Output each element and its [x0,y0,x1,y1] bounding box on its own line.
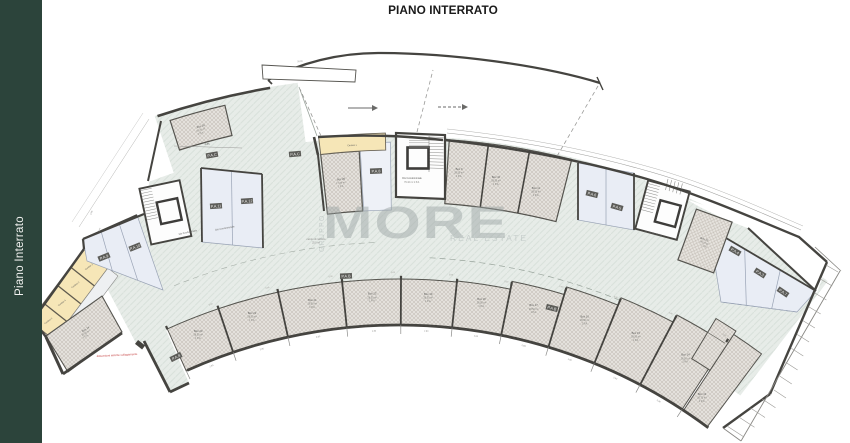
svg-text:1 P.A.: 1 P.A. [338,185,345,189]
svg-text:Dis Condominiale: Dis Condominiale [402,177,422,180]
svg-text:1 P.A.: 1 P.A. [456,175,463,178]
svg-text:1 P.A.: 1 P.A. [633,339,640,342]
svg-text:1 P.A.: 1 P.A. [425,300,432,303]
svg-text:4.85: 4.85 [204,142,210,146]
svg-text:Box 17: Box 17 [529,303,538,307]
svg-text:1 P.A.: 1 P.A. [582,323,589,326]
svg-text:Box 20: Box 20 [194,329,203,333]
svg-text:1 P.A.: 1 P.A. [682,361,689,364]
svg-text:1 P.A.: 1 P.A. [530,311,537,314]
svg-text:1 P.A.: 1 P.A. [369,300,376,303]
svg-text:Box 10: Box 10 [492,175,501,179]
svg-text:Box 9: Box 9 [456,167,463,171]
svg-text:79.10 m² 1 P.A.: 79.10 m² 1 P.A. [404,181,420,184]
svg-text:P.A.B: P.A.B [341,274,351,278]
svg-text:1 P.A.: 1 P.A. [249,319,256,322]
svg-text:Cantina 1: Cantina 1 [347,144,357,148]
svg-text:REAL ESTATE: REAL ESTATE [450,233,528,243]
svg-text:Box 11: Box 11 [532,186,541,190]
svg-text:Box 19: Box 19 [424,292,433,296]
svg-text:1 P.A.: 1 P.A. [195,337,202,340]
svg-text:P.A.11: P.A.11 [211,204,222,209]
svg-text:1 P.A.: 1 P.A. [493,183,500,186]
svg-text:Box 15: Box 15 [632,331,641,335]
svg-text:GRUPPO: GRUPPO [319,214,326,252]
svg-text:Box 18: Box 18 [477,297,486,301]
svg-text:Box 13: Box 13 [698,392,707,396]
svg-text:1 P.A.: 1 P.A. [699,400,706,403]
svg-text:1 P.A.: 1 P.A. [533,194,540,197]
svg-text:Box 21: Box 21 [308,298,317,302]
svg-text:P.A.12: P.A.12 [241,199,252,204]
svg-text:P.A.8: P.A.8 [372,169,381,173]
svg-text:1 P.A.: 1 P.A. [478,305,485,308]
svg-text:Box 14: Box 14 [681,353,690,357]
svg-text:P.A.C: P.A.C [290,152,300,157]
svg-text:Box 22: Box 22 [248,311,257,315]
svg-text:Box 16: Box 16 [581,315,590,319]
svg-text:1 P.A.: 1 P.A. [309,306,316,309]
svg-text:Box 23: Box 23 [368,292,377,296]
